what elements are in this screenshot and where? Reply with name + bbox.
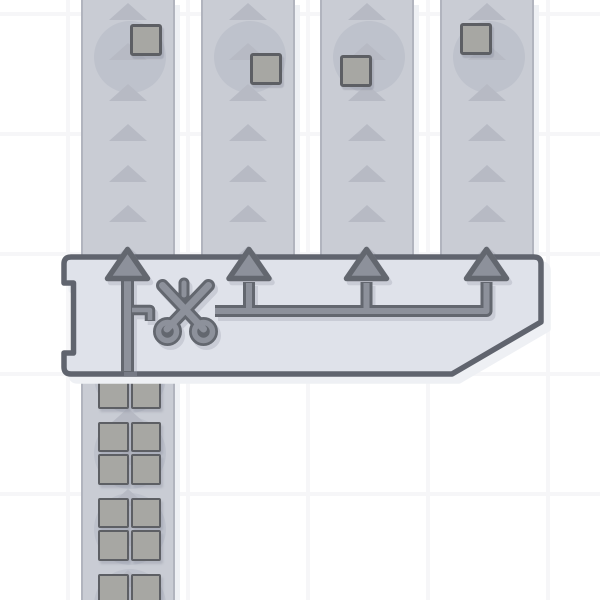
belt-arrow-icon xyxy=(109,205,147,222)
belt-arrow-icon xyxy=(348,3,386,20)
square-item-quadrant xyxy=(98,378,129,409)
belt-arrow-icon xyxy=(468,84,506,101)
conveyor-belt[interactable] xyxy=(81,0,175,256)
belt-arrow-icon xyxy=(348,165,386,182)
square-item-quadrant xyxy=(98,530,129,561)
square-item xyxy=(98,422,161,485)
belt-arrow-icon xyxy=(468,124,506,141)
belt-arrow-icon xyxy=(229,205,267,222)
belt-arrow-icon xyxy=(109,84,147,101)
belt-arrow-icon xyxy=(229,84,267,101)
scissors-icon xyxy=(159,283,213,341)
quarter-square-item xyxy=(130,24,162,56)
square-item-quadrant xyxy=(131,454,162,485)
quarter-square-item xyxy=(250,53,282,85)
conveyor-belt[interactable] xyxy=(440,0,534,256)
square-item-quadrant xyxy=(98,422,129,453)
square-item-quadrant xyxy=(131,371,162,376)
belt-arrow-icon xyxy=(468,165,506,182)
square-item xyxy=(98,498,161,561)
square-item-quadrant xyxy=(98,371,129,376)
square-item-quadrant xyxy=(98,498,129,529)
square-item-quadrant xyxy=(131,574,162,600)
conveyor-belt[interactable] xyxy=(320,0,414,256)
belt-arrow-icon xyxy=(109,3,147,20)
pipe-outline xyxy=(215,282,487,311)
belt-arrow-icon xyxy=(229,246,267,257)
belt-arrow-icon xyxy=(468,3,506,20)
belt-arrow-icon xyxy=(348,124,386,141)
conveyor-belt[interactable] xyxy=(201,0,295,256)
belt-arrow-icon xyxy=(229,165,267,182)
belt-arrow-icon xyxy=(229,3,267,20)
square-item xyxy=(98,371,161,409)
belt-arrow-icon xyxy=(468,246,506,257)
quarter-square-item xyxy=(340,55,372,87)
belt-arrow-icon xyxy=(348,246,386,257)
square-item xyxy=(98,574,161,600)
square-item-quadrant xyxy=(131,378,162,409)
conveyor-belt[interactable] xyxy=(81,371,175,600)
cutter-mechanism xyxy=(108,250,507,373)
square-item-quadrant xyxy=(98,574,129,600)
belt-arrow-icon xyxy=(109,246,147,257)
quarter-square-item xyxy=(460,23,492,55)
square-item-quadrant xyxy=(131,498,162,529)
input-branch-outline xyxy=(132,310,150,321)
belt-arrow-icon xyxy=(468,205,506,222)
square-item-quadrant xyxy=(131,422,162,453)
belt-arrow-icon xyxy=(109,124,147,141)
belt-arrow-icon xyxy=(109,165,147,182)
game-viewport[interactable] xyxy=(0,0,600,600)
cutter-building-body[interactable] xyxy=(64,257,541,374)
belt-arrow-icon xyxy=(229,124,267,141)
square-item-quadrant xyxy=(131,530,162,561)
belt-arrow-icon xyxy=(348,205,386,222)
square-item-quadrant xyxy=(98,454,129,485)
